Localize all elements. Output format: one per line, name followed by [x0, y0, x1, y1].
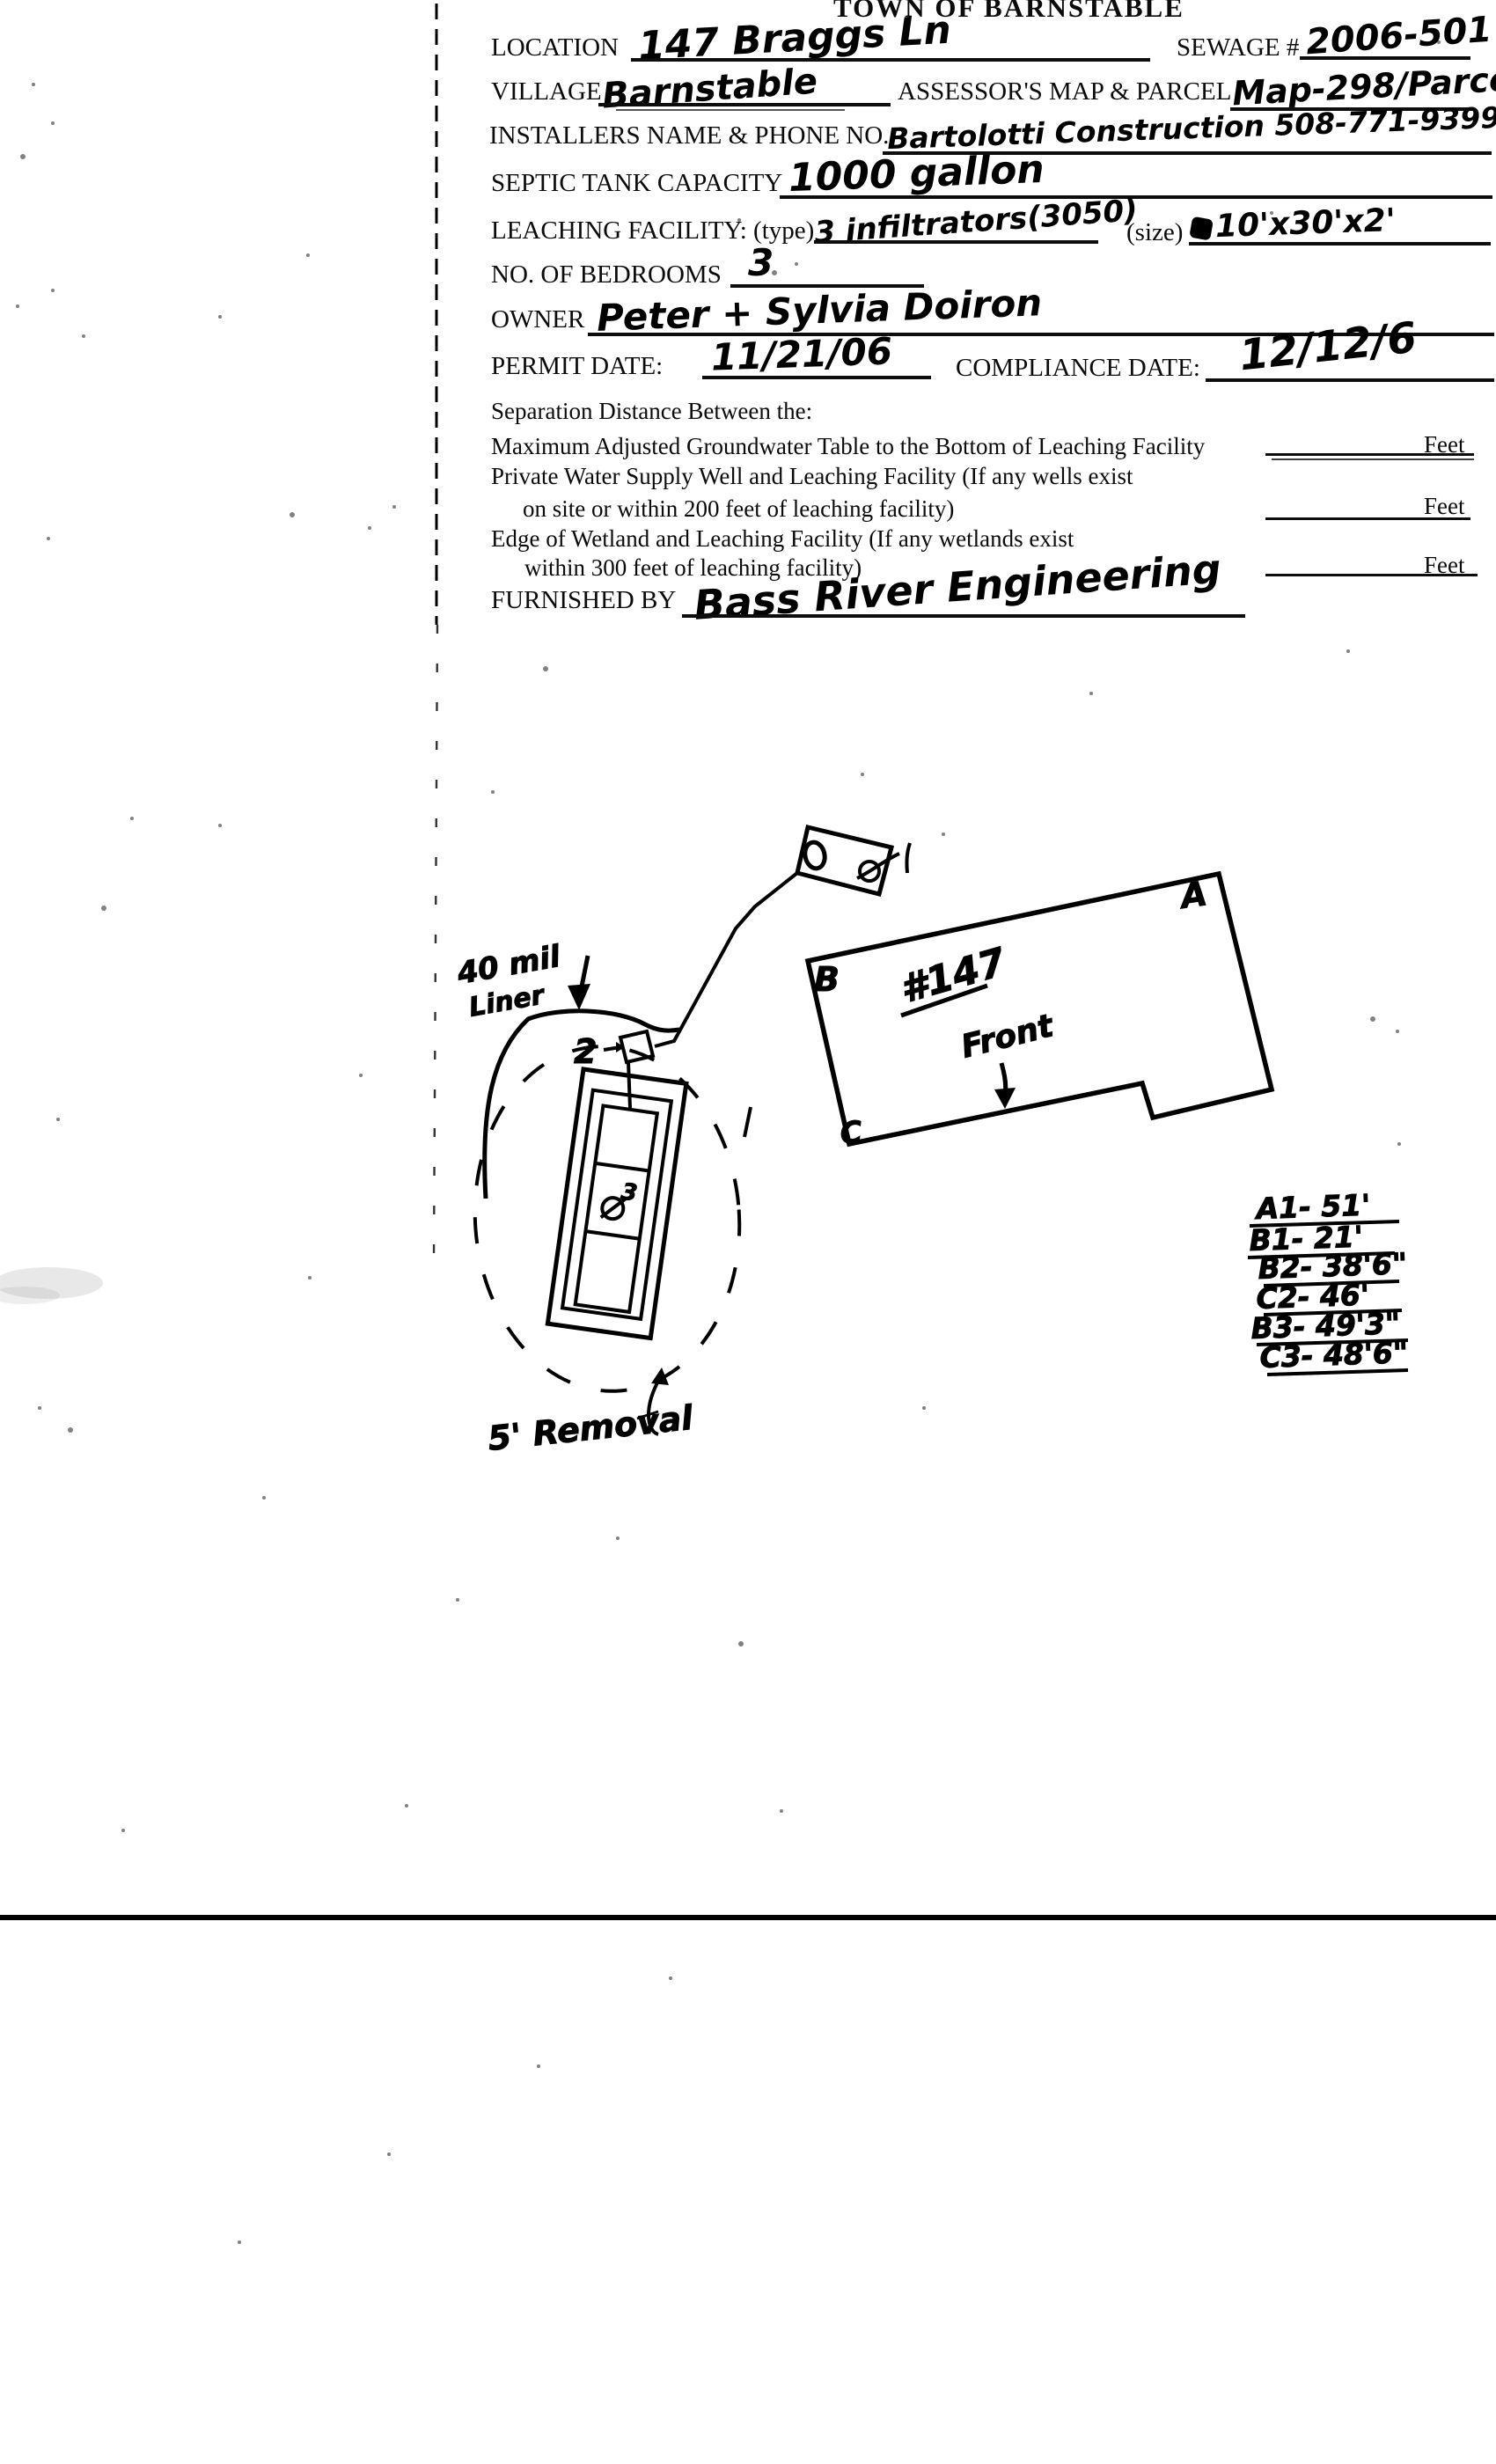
- site-sketch: 40 mil Liner 2 3 5' Rem: [0, 0, 1496, 2464]
- septic-tank-outline: [797, 827, 891, 894]
- house-corner-c-label: C: [839, 1115, 864, 1152]
- front-arrowhead-icon: [994, 1088, 1016, 1109]
- measurement-row: C3- 48'6": [1259, 1335, 1409, 1375]
- leach-bed: 3: [547, 1069, 686, 1338]
- stray-dash: [744, 1107, 751, 1137]
- liner-label-1: 40 mil: [454, 939, 564, 992]
- house-outline: [808, 874, 1272, 1144]
- tank-cover-o-icon: [803, 840, 827, 870]
- infiltrator-divider-1: [595, 1163, 649, 1171]
- scanned-septic-permit-form: TOWN OF BARNSTABLE LOCATION 147 Braggs L…: [0, 0, 1496, 2464]
- infiltrator-divider-2: [585, 1231, 639, 1239]
- front-label: Front: [957, 1008, 1058, 1066]
- page-divider-rule: [0, 1915, 1496, 1920]
- dbox-to-bed-pipe: [628, 1062, 630, 1108]
- liner-arrowhead-icon: [568, 984, 590, 1010]
- pipe-line: [655, 873, 797, 1046]
- infiltrator-label: 3: [620, 1178, 639, 1206]
- house-number-label: #147: [895, 940, 1011, 1013]
- removal-label: 5' Removal: [486, 1398, 695, 1458]
- house-corner-b-label: B: [814, 960, 840, 999]
- house-corner-a-label: A: [1176, 874, 1209, 916]
- dbox-label: 2: [574, 1032, 597, 1071]
- scan-noise: [16, 40, 1441, 2244]
- margin-dashed-line-lower: [434, 625, 437, 1258]
- measurement-list: A1- 51' B1- 21' B2- 38'6" C2- 46' B3- 49…: [1248, 1187, 1409, 1375]
